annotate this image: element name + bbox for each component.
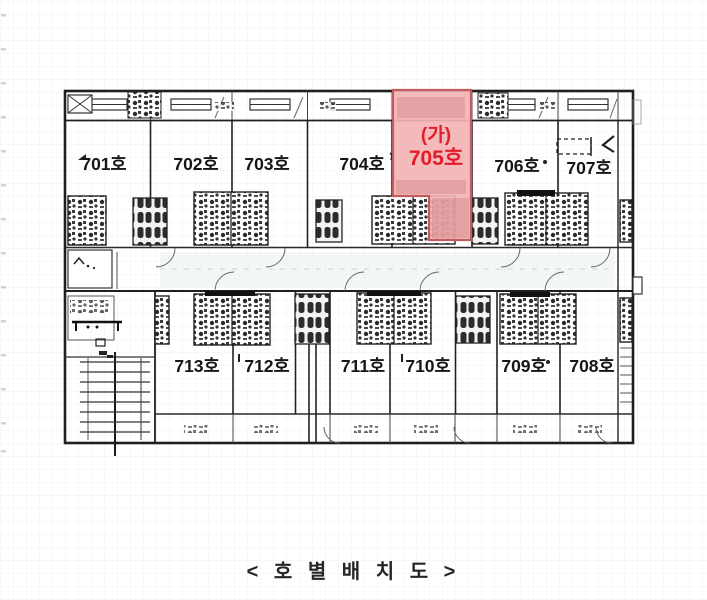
- entry-vestibule: [68, 250, 117, 289]
- highlighted-unit-tag: (가): [421, 124, 451, 146]
- bottom-balcony: [184, 414, 612, 443]
- scanned-page: (가) 705호 701호 702호 703호 704호 706호 707호 7…: [0, 0, 707, 600]
- room-label-712: 712호: [244, 356, 289, 376]
- shaft-dark-block: [478, 93, 508, 118]
- floor-plan: (가) 705호 701호 702호 703호 704호 706호 707호 7…: [0, 0, 707, 600]
- room-label-709: 709호: [501, 356, 546, 376]
- room-label-708: 708호: [569, 356, 614, 376]
- room-label-707: 707호: [566, 158, 611, 178]
- room-label-704: 704호: [339, 154, 384, 174]
- drawing-caption: < 호 별 배 치 도 >: [0, 555, 707, 584]
- room-label-713: 713호: [174, 356, 219, 376]
- top-balcony: [68, 91, 618, 120]
- staircase: [80, 352, 150, 455]
- shaft-dark-block: [128, 92, 161, 118]
- room-label-706: 706호: [494, 156, 539, 176]
- lower-left-room: [68, 296, 122, 358]
- room-label-701: 701호: [81, 154, 126, 174]
- room-label-710: 710호: [405, 356, 450, 376]
- furniture-707: [557, 136, 614, 156]
- arrow-mark-icon: [603, 136, 614, 152]
- right-strip: [620, 100, 642, 402]
- room-label-702: 702호: [173, 154, 218, 174]
- highlighted-unit-label: 705호: [409, 147, 463, 170]
- room-label-711: 711호: [341, 356, 385, 376]
- room-label-703: 703호: [244, 154, 289, 174]
- scan-noise: [1, 14, 6, 453]
